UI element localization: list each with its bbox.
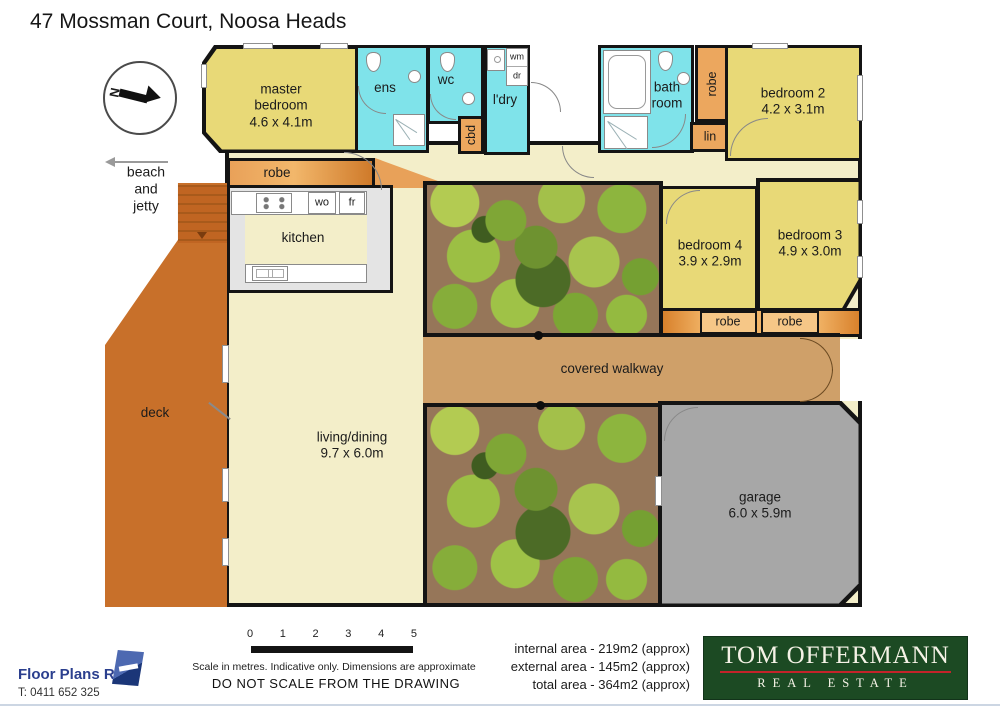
footer-divider [0,704,1000,706]
laundry-label: l'dry [493,92,517,108]
bedroom2-dims: 4.2 x 3.1m [761,102,826,118]
internal-area: internal area - 219m2 (approx) [455,640,690,658]
total-area: total area - 364m2 (approx) [455,676,690,694]
wc-label: wc [438,72,455,88]
master-robe-label: robe [263,165,290,181]
beach-arrow-head [105,157,115,167]
kitchen-label: kitchen [282,230,325,246]
living-name: living/dining [317,430,388,446]
fr-text: fr [349,196,356,209]
provider-phone: T: 0411 652 325 [18,687,100,699]
scale-tick: 4 [378,628,384,640]
master-window [201,64,207,88]
bedroom-3-label: bedroom 3 4.9 x 3.0m [778,228,843,261]
scale-bar-rule [251,646,413,653]
ens-text: ens [374,80,396,96]
scale-tick: 5 [411,628,417,640]
scale-tick: 2 [313,628,319,640]
living-window [222,345,229,383]
covered-walkway-label: covered walkway [561,361,664,377]
kitchen-text: kitchen [282,230,325,246]
wm-text: wm [510,52,524,63]
robe-text: robe [777,314,802,329]
bath-line1: bath [652,80,683,96]
scale-ticks: 0 1 2 3 4 5 [247,628,417,640]
bedroom-4-robe-label: robe [715,314,740,329]
living-window [222,538,229,566]
scale-tick: 0 [247,628,253,640]
jetty-line: jetty [127,198,165,215]
bedroom3-dims: 4.9 x 3.0m [778,244,843,260]
linen-label: lin [704,129,717,144]
external-area: external area - 145m2 (approx) [455,658,690,676]
page-title: 47 Mossman Court, Noosa Heads [30,10,346,34]
ldry-text: l'dry [493,92,517,108]
garage-dims: 6.0 x 5.9m [728,506,791,522]
dryer-label: dr [513,71,521,82]
bath-line2: room [652,96,683,112]
agency-name: TOM OFFERMANN [704,642,967,670]
living-window [222,468,229,502]
bedroom-4-label: bedroom 4 3.9 x 2.9m [678,238,743,271]
bedroom-3-window [857,256,863,278]
garage-name: garage [728,490,791,506]
walkway-text: covered walkway [561,361,664,377]
lin-text: lin [704,129,717,144]
bathtub-icon [603,50,651,114]
bedroom-2-window [752,43,788,49]
agency-tagline: REAL ESTATE [704,676,967,691]
master-bedroom-label: master bedroom 4.6 x 4.1m [249,81,312,130]
ens-label: ens [374,80,396,96]
agency-red-rule [720,671,951,673]
cbd-text: cbd [464,125,478,145]
bedroom-2-label: bedroom 2 4.2 x 3.1m [761,86,826,119]
master-dims: 4.6 x 4.1m [249,114,312,130]
scale-warning: DO NOT SCALE FROM THE DRAWING [212,676,460,691]
ens-basin-icon [408,70,421,83]
robe-text: robe [715,314,740,329]
wo-text: wo [315,196,329,209]
ens-shower-icon [393,114,425,146]
cooktop-icon [256,193,292,213]
agency-logo: TOM OFFERMANN REAL ESTATE [703,636,968,700]
living-dims: 9.7 x 6.0m [317,446,388,462]
beach-jetty-text: beach and jetty [127,163,165,214]
master-window [243,43,273,49]
floor-plan-page: 47 Mossman Court, Noosa Heads N beach an… [0,0,1000,713]
wc-text: wc [438,72,455,88]
garage-label: garage 6.0 x 5.9m [728,490,791,523]
stairs-down-arrow [197,232,207,239]
bathroom-label: bath room [652,80,683,113]
scale-tick: 3 [345,628,351,640]
walkway-gap-mask [840,339,868,401]
laundry-door-arc [531,82,561,112]
robe-text: robe [263,165,290,181]
wc-basin-icon [462,92,475,105]
bath-shower-icon [604,116,648,149]
area-summary: internal area - 219m2 (approx) external … [455,640,690,694]
beach-line: beach [127,163,165,180]
garage-side-door [655,476,662,506]
walkway-post [536,401,545,410]
master-line1: master [249,81,312,97]
deck-label: deck [141,405,170,421]
washer-label: wm [510,52,524,63]
bedroom4-dims: 3.9 x 2.9m [678,254,743,270]
kitchen-sink-icon [252,266,288,281]
dr-text: dr [513,71,521,82]
fridge-label: fr [349,196,356,209]
deck-area [105,183,227,607]
robe-text: robe [705,71,719,96]
scale-tick: 1 [280,628,286,640]
living-dining-label: living/dining 9.7 x 6.0m [317,430,388,463]
and-line: and [127,180,165,197]
laundry-tub-icon [487,49,505,71]
courtyard-garden-top [423,181,663,337]
bedroom2-name: bedroom 2 [761,86,826,102]
bedroom3-name: bedroom 3 [778,228,843,244]
bedroom4-name: bedroom 4 [678,238,743,254]
bedroom-3-window [857,200,863,224]
walkway-post [534,331,543,340]
washer-dryer-divider [507,66,527,67]
courtyard-garden-bottom [423,403,663,607]
master-line2: bedroom [249,98,312,114]
hall-robe-label: robe [705,71,719,96]
deck-text: deck [141,405,170,421]
scale-note: Scale in metres. Indicative only. Dimens… [192,661,475,673]
master-window [320,43,348,49]
bedroom-3-robe-label: robe [777,314,802,329]
bedroom-2-window [857,75,863,121]
cupboard-label: cbd [464,125,478,145]
wall-oven-label: wo [315,196,329,209]
